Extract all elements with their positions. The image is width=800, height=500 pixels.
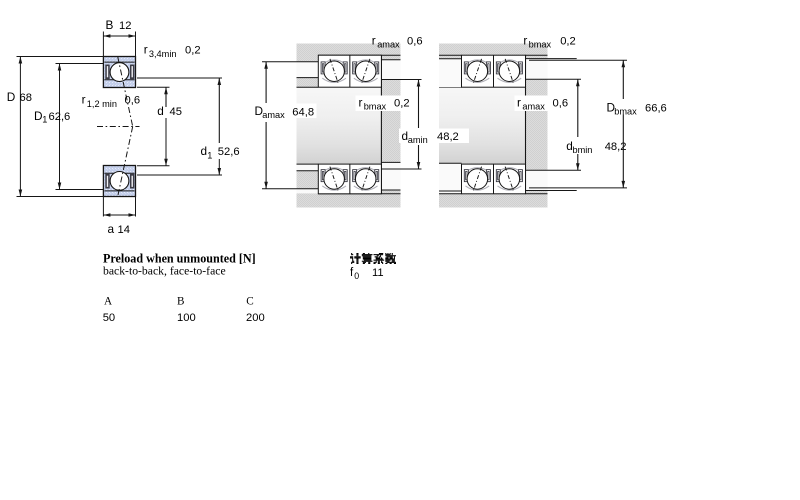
svg-text:66,6: 66,6 [645, 102, 667, 114]
svg-text:0,2: 0,2 [185, 45, 201, 57]
svg-text:0: 0 [354, 271, 359, 281]
svg-text:Preload when unmounted [N]: Preload when unmounted [N] [103, 252, 256, 266]
svg-text:amax: amax [522, 102, 545, 112]
svg-text:r: r [359, 96, 363, 110]
svg-text:D: D [7, 90, 16, 104]
svg-text:amin: amin [408, 135, 428, 145]
svg-text:amax: amax [377, 40, 400, 50]
svg-text:back-to-back, face-to-face: back-to-back, face-to-face [103, 265, 226, 278]
svg-text:52,6: 52,6 [218, 146, 240, 158]
svg-text:bmax: bmax [614, 106, 637, 116]
svg-text:r: r [82, 93, 86, 107]
svg-text:bmin: bmin [573, 145, 593, 155]
svg-text:d: d [201, 144, 208, 158]
svg-text:62,6: 62,6 [49, 111, 71, 123]
svg-text:B: B [106, 18, 114, 32]
svg-text:3,4min: 3,4min [149, 49, 177, 59]
svg-text:1: 1 [207, 151, 212, 161]
svg-text:bmax: bmax [529, 40, 552, 50]
svg-text:0,2: 0,2 [560, 36, 576, 48]
svg-text:0,6: 0,6 [407, 36, 423, 48]
svg-text:B: B [177, 296, 184, 308]
svg-text:C: C [246, 296, 253, 308]
svg-text:64,8: 64,8 [292, 107, 314, 119]
svg-text:100: 100 [177, 312, 196, 324]
svg-text:1,2 min: 1,2 min [87, 99, 117, 109]
svg-text:r: r [144, 43, 148, 57]
svg-text:0,2: 0,2 [394, 98, 410, 110]
svg-text:45: 45 [170, 106, 182, 118]
svg-text:0,6: 0,6 [125, 95, 141, 107]
svg-text:11: 11 [372, 267, 384, 279]
svg-text:r: r [517, 96, 521, 110]
svg-text:0,6: 0,6 [553, 98, 569, 110]
svg-text:r: r [372, 34, 376, 48]
svg-text:48,2: 48,2 [437, 131, 459, 143]
svg-text:68: 68 [20, 92, 32, 104]
svg-text:A: A [104, 296, 112, 308]
svg-text:12: 12 [119, 20, 131, 32]
svg-text:14: 14 [118, 224, 130, 236]
svg-text:amax: amax [262, 110, 285, 120]
svg-text:a: a [108, 222, 115, 236]
svg-text:1: 1 [42, 115, 47, 125]
svg-text:50: 50 [103, 312, 115, 324]
svg-text:bmax: bmax [364, 102, 387, 112]
svg-text:d: d [157, 104, 164, 118]
svg-text:r: r [523, 34, 527, 48]
svg-text:200: 200 [246, 312, 265, 324]
